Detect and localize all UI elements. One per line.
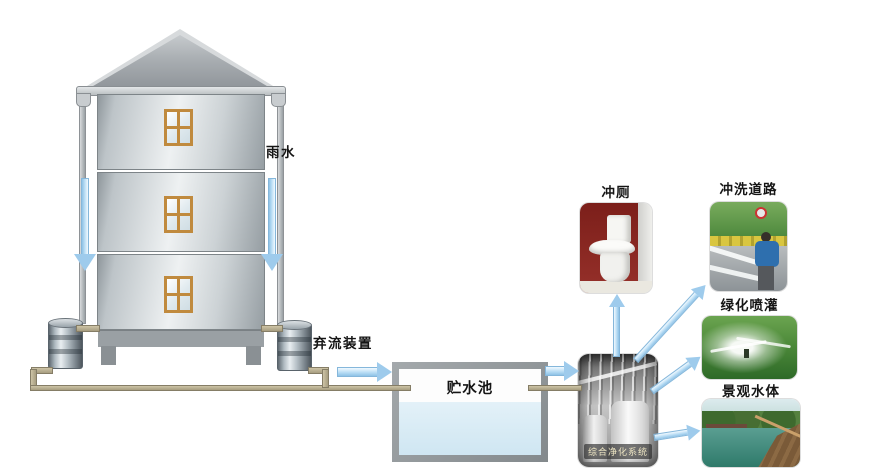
gutter-elbow-right [271, 93, 286, 107]
irrigation-photo [702, 316, 797, 379]
rain-label: 雨水 [266, 141, 296, 161]
rain-arrow-right [261, 178, 283, 271]
discard-device-label: 弃流装置 [313, 332, 373, 352]
window-floor-3 [164, 109, 193, 146]
window-floor-2 [164, 196, 193, 233]
purification-system-label: 综合净化系统 [578, 442, 658, 460]
pipe-ground-main [30, 385, 411, 391]
arrow-tank-to-purification [545, 360, 579, 382]
pipe-wall-to-left-barrel [76, 325, 100, 332]
foundation-leg-left [101, 346, 116, 365]
landscape-water-label: 景观水体 [702, 380, 800, 400]
toilet-base [600, 252, 630, 283]
foundation-leg-right [246, 346, 261, 365]
rainwater-system-diagram: 雨水 弃流装置 贮水池 综合净化系统 [0, 0, 869, 475]
purification-photo: 综合净化系统 [578, 354, 658, 467]
toilet-label: 冲厕 [580, 181, 652, 201]
pipe-wall-to-right-barrel [261, 325, 283, 332]
arrow-to-landscape [652, 420, 702, 449]
worker-legs [758, 266, 774, 290]
green-irrigation-label: 绿化喷灌 [702, 294, 797, 314]
landscape-photo [702, 399, 800, 467]
road-washing-photo [710, 202, 787, 291]
foundation [98, 330, 264, 347]
road-washing-label: 冲洗道路 [705, 178, 792, 198]
rain-arrow-left [74, 178, 96, 271]
gutter-elbow-left [76, 93, 91, 107]
pipe-right-down [322, 369, 329, 388]
arrow-barrel-to-tank [337, 361, 392, 383]
road-sign [755, 207, 767, 219]
arrow-to-toilet [606, 294, 628, 357]
toilet-photo [580, 203, 652, 293]
tank-water [399, 402, 541, 455]
sprinkler-head [744, 349, 749, 358]
storage-tank-label: 贮水池 [392, 377, 548, 398]
worker-shirt [755, 241, 779, 267]
roof [88, 35, 272, 89]
window-floor-1 [164, 276, 193, 313]
